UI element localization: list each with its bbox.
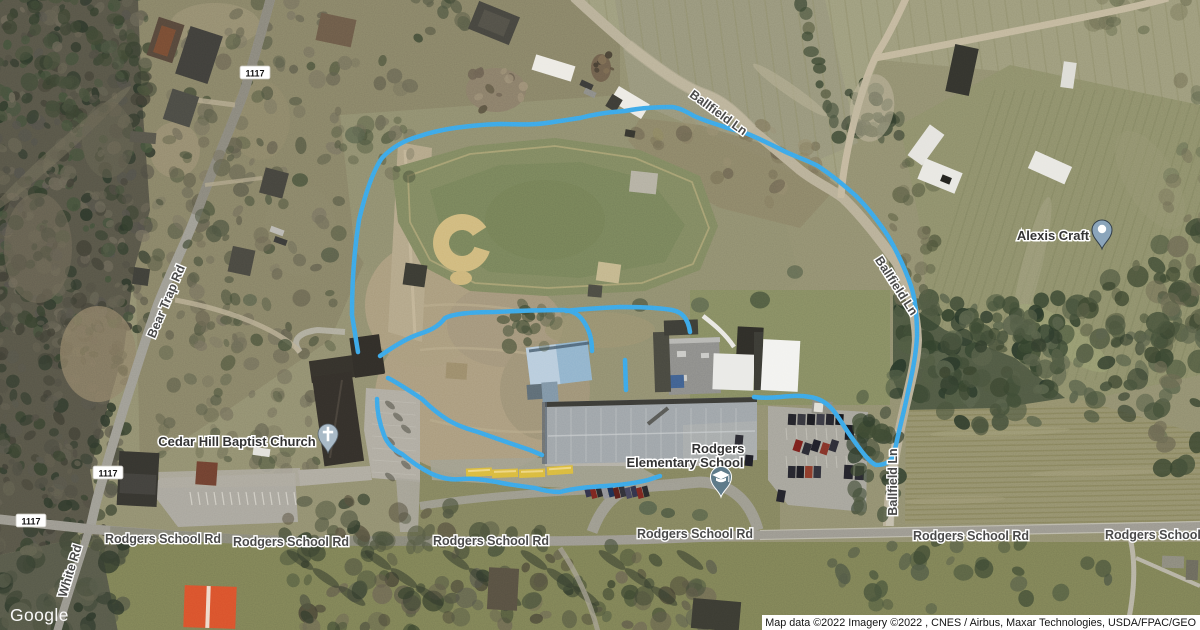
svg-text:Rodgers School Rd: Rodgers School Rd [233,535,349,549]
svg-text:Rodgers School Rd: Rodgers School Rd [637,527,753,541]
svg-text:1117: 1117 [245,69,264,79]
svg-text:1117: 1117 [21,517,40,527]
svg-text:Rodgers School Rd: Rodgers School Rd [913,529,1029,543]
svg-text:Map data ©2022 Imagery ©2022 ,: Map data ©2022 Imagery ©2022 , CNES / Ai… [765,617,1196,629]
svg-text:1117: 1117 [98,469,117,479]
svg-text:Google: Google [10,605,69,625]
svg-text:Rodgers School Rd: Rodgers School Rd [433,534,549,548]
svg-text:Alexis Craft: Alexis Craft [1017,228,1090,243]
svg-text:Cedar Hill Baptist Church: Cedar Hill Baptist Church [158,434,316,449]
svg-text:Rodgers: Rodgers [692,441,745,456]
svg-text:Rodgers School Rd: Rodgers School Rd [1105,528,1200,542]
svg-text:Rodgers School Rd: Rodgers School Rd [105,532,221,546]
svg-text:Ballfield Ln: Ballfield Ln [886,448,900,515]
